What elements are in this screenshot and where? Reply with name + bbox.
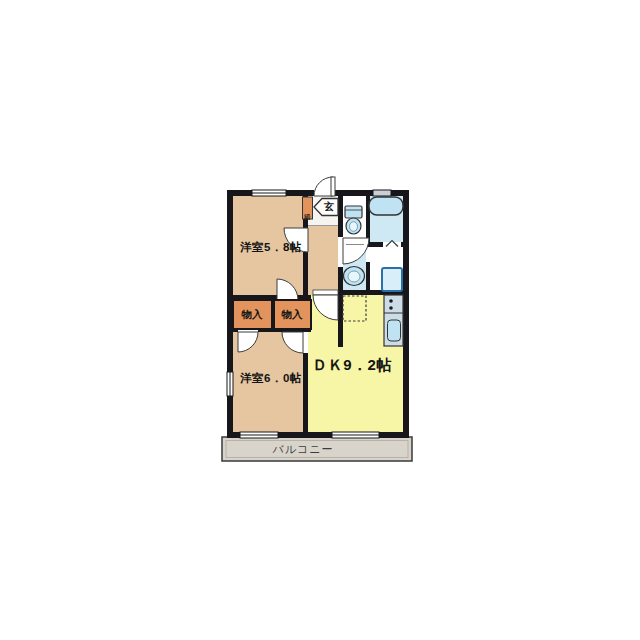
dk-label: ＤＫ9．2帖 [312, 357, 392, 372]
floor-plan-drawing [0, 0, 640, 640]
bedroom2-balcony-window [240, 432, 278, 438]
bathtub-icon [369, 197, 403, 215]
balcony-label: バルコニー [272, 444, 333, 455]
bedroom1-top-window [252, 190, 286, 196]
stove-burner-icon [389, 299, 393, 303]
washing-machine-icon [382, 268, 402, 291]
water-heater-box [303, 197, 313, 219]
closet-right-label: 物入 [282, 309, 303, 320]
floor-plan-image: 洋室5．8帖 洋室6．0帖 ＤＫ9．2帖 物入 物入 玄 給湯 バルコニー [0, 0, 640, 640]
wall-outer-right [403, 190, 409, 438]
washbasin-icon [344, 267, 365, 286]
entrance-door [314, 177, 335, 196]
closet-left-label: 物入 [242, 309, 263, 320]
dk-balcony-window [332, 432, 379, 438]
kitchen-counter [384, 295, 403, 346]
entrance-label: 玄 [324, 202, 334, 212]
kitchen-sink-icon [388, 320, 401, 341]
bedroom2-label: 洋室6．0帖 [240, 373, 302, 385]
bedroom2-left-window [227, 372, 233, 396]
stove-burner-icon [389, 306, 393, 310]
bathroom-top-window [373, 190, 391, 196]
bedroom1-label: 洋室5．8帖 [240, 242, 302, 254]
toilet-door [346, 242, 364, 247]
